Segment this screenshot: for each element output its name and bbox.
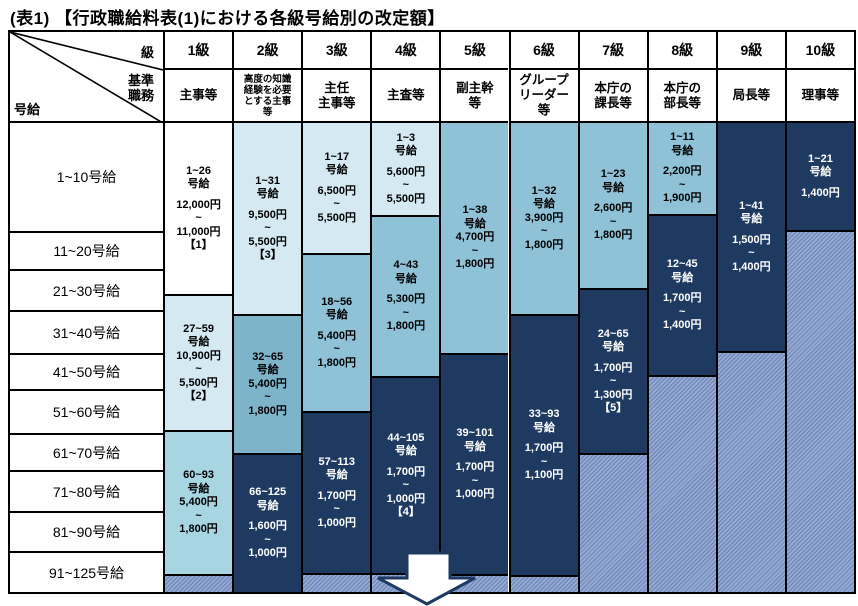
block-line: 【3】 [254,249,282,263]
block-line: 1,300円 [594,389,633,403]
block-line: 6,500円 [317,185,356,199]
grade-header-cell: 4級 [370,32,439,70]
block-line: 号給 [671,272,693,286]
block-line: 【4】 [392,506,420,520]
block-line: 1~26 [186,165,211,179]
grade-column: 1~32号給3,900円~1,800円33~93号給1,700円~1,100円 [509,123,578,592]
salary-block: 27~59号給10,900円~5,500円【2】 [165,296,232,432]
salary-block: 60~93号給5,400円~1,800円 [165,432,232,576]
block-line: ~ [541,456,547,470]
block-line: ~ [264,391,270,405]
row-label-cell: 81~90号給 [10,513,163,553]
block-line: 号給 [326,309,348,323]
block-line: 5,500円 [179,377,218,391]
block-line: 1,800円 [179,523,218,537]
salary-block: 4~43号給5,300円~1,800円 [372,217,439,378]
duty-header-cell: 理事等 [785,70,854,123]
block-line: 12~45 [667,258,698,272]
duty-line: 部長等 [663,96,701,111]
block-line: ~ [679,179,685,193]
grade-column: 1~17号給6,500円~5,500円18~56号給5,400円~1,800円5… [301,123,370,592]
block-line: 1,000円 [456,488,495,502]
block-line: ~ [472,475,478,489]
block-line: 1,800円 [248,405,287,419]
block-line: 【2】 [184,390,212,404]
block-line: 5,500円 [317,212,356,226]
hatch-block [303,575,370,592]
block-line: 4~43 [393,259,418,273]
block-line: 【1】 [184,239,212,253]
block-line: 号給 [257,500,279,514]
hatch-block [165,576,232,592]
block-line: ~ [541,225,547,239]
block-line: 9,500円 [248,209,287,223]
block-line: 号給 [809,166,831,180]
block-line: 5,400円 [248,378,287,392]
block-line: 2,200円 [663,165,702,179]
block-line: 1,100円 [525,469,564,483]
duty-line: 等 [263,107,273,118]
row-label-cell: 41~50号給 [10,355,163,391]
salary-block: 57~113号給1,700円~1,000円 [303,413,370,575]
grade-column: 1~11号給2,200円~1,900円12~45号給1,700円~1,400円 [647,123,716,592]
block-line: 号給 [602,341,624,355]
block-line: 5,300円 [387,293,426,307]
duty-line: グループ [519,73,568,88]
block-line: 5,500円 [387,193,426,207]
grade-header-cell: 5級 [439,32,508,70]
salary-block: 24~65号給1,700円~1,300円【5】 [580,290,647,455]
block-line: 1,800円 [525,239,564,253]
grade-header-cell: 7級 [578,32,647,70]
corner-grade-label: 級 [141,42,154,61]
block-line: 号給 [188,178,210,192]
block-line: 32~65 [252,351,283,365]
duty-line: 理事等 [802,88,840,103]
grade-header-cell: 8級 [647,32,716,70]
salary-block: 32~65号給5,400円~1,800円 [234,316,301,455]
block-line: 24~65 [598,328,629,342]
block-line: ~ [748,247,754,261]
block-line: 1,800円 [594,229,633,243]
block-line: 39~101 [456,427,493,441]
block-line: 3,900円 [525,212,564,226]
block-line: 1,000円 [317,517,356,531]
duty-header-cell: 主事等 [163,70,232,123]
grade-header-cell: 2級 [232,32,301,70]
duty-line: 副主幹 [456,81,494,96]
block-line: 号給 [188,336,210,350]
block-line: 1~32 [532,185,557,199]
duty-line: リーダー [519,88,569,103]
block-line: 1,400円 [732,261,771,275]
salary-block: 1~38号給4,700円~1,800円 [441,123,508,355]
block-line: ~ [195,363,201,377]
grade-column: 1~31号給9,500円~5,500円【3】32~65号給5,400円~1,80… [232,123,301,592]
block-line: 33~93 [529,408,560,422]
duty-line: 本庁の [594,81,632,96]
grade-column: 1~21号給1,400円 [785,123,854,592]
block-line: 号給 [326,469,348,483]
block-line: 1~3 [397,132,416,146]
block-line: ~ [334,343,340,357]
block-line: 12,000円 [176,199,221,213]
block-line: 60~93 [183,469,214,483]
block-line: 5,500円 [248,236,287,250]
row-label-cell: 71~80号給 [10,472,163,513]
block-line: 1,700円 [387,466,426,480]
salary-block: 1~32号給3,900円~1,800円 [511,123,578,316]
block-line: 1,800円 [456,258,495,272]
row-label-cell: 31~40号給 [10,312,163,355]
block-line: 1~31 [255,175,280,189]
duty-line: 主事等 [180,88,218,103]
block-line: 1,700円 [663,292,702,306]
duty-header-cell: グループリーダー等 [509,70,578,123]
salary-block: 44~105号給1,700円~1,000円【4】 [372,378,439,575]
block-line: 1,400円 [663,319,702,333]
block-line: 1,900円 [663,192,702,206]
block-line: 1~17 [324,151,349,165]
block-line: ~ [334,503,340,517]
block-line: 18~56 [321,296,352,310]
block-line: 10,900円 [176,350,221,364]
duty-line: 等 [538,103,551,118]
block-line: 5,400円 [179,496,218,510]
page: { "title": "(表1) 【行政職給料表(1)における各級号給別の改定額… [0,0,858,606]
duty-line: 高度の知識 [244,74,292,85]
grade-header-cell: 3級 [301,32,370,70]
grade-column: 1~26号給12,000円~11,000円【1】27~59号給10,900円~5… [163,123,232,592]
duty-line: 課長等 [594,96,632,111]
hatch-block [787,232,854,592]
block-line: ~ [195,212,201,226]
row-label-cell: 51~60号給 [10,391,163,435]
corner-duty-label: 基準職務 [128,73,154,103]
duty-line: 主事等 [318,96,356,111]
row-label-cell: 21~30号給 [10,271,163,312]
block-line: 号給 [257,364,279,378]
block-line: 号給 [257,188,279,202]
duty-line: 主任 [324,81,349,96]
grade-column: 1~38号給4,700円~1,800円39~101号給1,700円~1,000円 [439,123,508,592]
block-line: 号給 [464,218,486,232]
salary-revision-table: 級 基準職務 号給 1~10号給11~20号給21~30号給31~40号給41~… [8,30,856,594]
block-line: 1,700円 [594,362,633,376]
block-line: 44~105 [387,432,424,446]
salary-block: 1~3号給5,600円~5,500円 [372,123,439,217]
block-line: 4,700円 [456,231,495,245]
block-line: ~ [195,510,201,524]
block-line: 66~125 [249,486,286,500]
grade-header-cell: 9級 [716,32,785,70]
salary-block: 66~125号給1,600円~1,000円 [234,455,301,592]
duty-line: 局長等 [733,88,771,103]
block-line: 号給 [533,198,555,212]
block-line: 27~59 [183,323,214,337]
block-line: 号給 [395,145,417,159]
block-line: ~ [472,245,478,259]
hatch-block [511,577,578,592]
salary-block: 1~23号給2,600円~1,800円 [580,123,647,290]
block-line: 5,600円 [387,166,426,180]
row-label-cell: 91~125号給 [10,553,163,592]
duty-line: 等 [469,96,482,111]
salary-block: 1~21号給1,400円 [787,123,854,232]
block-line: 1,800円 [317,357,356,371]
salary-block: 1~17号給6,500円~5,500円 [303,123,370,255]
block-line: 5,400円 [317,330,356,344]
grade-column: 1~3号給5,600円~5,500円4~43号給5,300円~1,800円44~… [370,123,439,592]
block-line: 11,000円 [177,226,221,240]
hatch-block [718,353,785,592]
block-line: 【5】 [599,402,627,416]
block-line: 1,700円 [317,490,356,504]
block-line: 号給 [740,213,762,227]
block-line: 号給 [602,182,624,196]
salary-block: 1~41号給1,500円~1,400円 [718,123,785,353]
salary-block: 1~26号給12,000円~11,000円【1】 [165,123,232,296]
block-line: 号給 [533,422,555,436]
grade-header-cell: 6級 [509,32,578,70]
duty-line: とする主事 [244,96,291,107]
duty-header-cell: 主任主事等 [301,70,370,123]
block-line: 1~21 [808,153,833,167]
block-line: 号給 [188,483,210,497]
block-line: 1,000円 [248,547,287,561]
row-label-cell: 1~10号給 [10,123,163,233]
block-line: ~ [403,307,409,321]
grade-header-cell: 1級 [163,32,232,70]
block-line: 1,500円 [732,234,771,248]
block-line: 号給 [395,445,417,459]
block-line: ~ [264,534,270,548]
row-label-cell: 11~20号給 [10,233,163,271]
hatch-block [649,377,716,592]
block-line: 1,700円 [525,442,564,456]
block-line: ~ [264,222,270,236]
grade-column: 1~23号給2,600円~1,800円24~65号給1,700円~1,300円【… [578,123,647,592]
row-label-cell: 61~70号給 [10,435,163,472]
table-title: (表1) 【行政職給料表(1)における各級号給別の改定額】 [10,4,445,29]
block-line: 1,600円 [248,520,287,534]
corner-header-cell: 級 基準職務 号給 [10,32,163,123]
block-line: 57~113 [319,456,355,470]
block-line: 1,700円 [456,461,495,475]
duty-header-cell: 本庁の部長等 [647,70,716,123]
salary-block: 12~45号給1,700円~1,400円 [649,216,716,377]
block-line: 号給 [326,164,348,178]
block-line: 1~11 [670,131,694,145]
salary-block: 18~56号給5,400円~1,800円 [303,255,370,413]
salary-block: 1~11号給2,200円~1,900円 [649,123,716,216]
block-line: 1,400円 [801,187,840,201]
down-arrow-icon [375,551,479,606]
block-line: ~ [334,198,340,212]
duty-line: 本庁の [663,81,701,96]
block-line: 号給 [395,273,417,287]
block-line: 2,600円 [594,202,633,216]
duty-header-cell: 副主幹等 [439,70,508,123]
grade-column: 1~41号給1,500円~1,400円 [716,123,785,592]
duty-line: 主査等 [387,88,425,103]
hatch-block [580,455,647,592]
block-line: ~ [679,306,685,320]
duty-header-cell: 主査等 [370,70,439,123]
block-line: ~ [610,375,616,389]
block-line: 1~41 [739,200,764,214]
block-line: 号給 [464,441,486,455]
duty-header-cell: 本庁の課長等 [578,70,647,123]
block-line: ~ [610,216,616,230]
grade-header-cell: 10級 [785,32,854,70]
duty-line: 経験を必要 [244,85,292,96]
block-line: ~ [403,479,409,493]
duty-header-cell: 高度の知識経験を必要とする主事等 [232,70,301,123]
block-line: 1~23 [601,168,626,182]
block-line: ~ [403,179,409,193]
salary-block: 39~101号給1,700円~1,000円 [441,355,508,576]
block-line: 号給 [671,145,693,159]
corner-step-label: 号給 [14,99,40,118]
block-line: 1,800円 [387,320,426,334]
duty-header-cell: 局長等 [716,70,785,123]
block-line: 1,000円 [387,493,426,507]
salary-block: 33~93号給1,700円~1,100円 [511,316,578,577]
salary-block: 1~31号給9,500円~5,500円【3】 [234,123,301,316]
block-line: 1~38 [463,204,488,218]
